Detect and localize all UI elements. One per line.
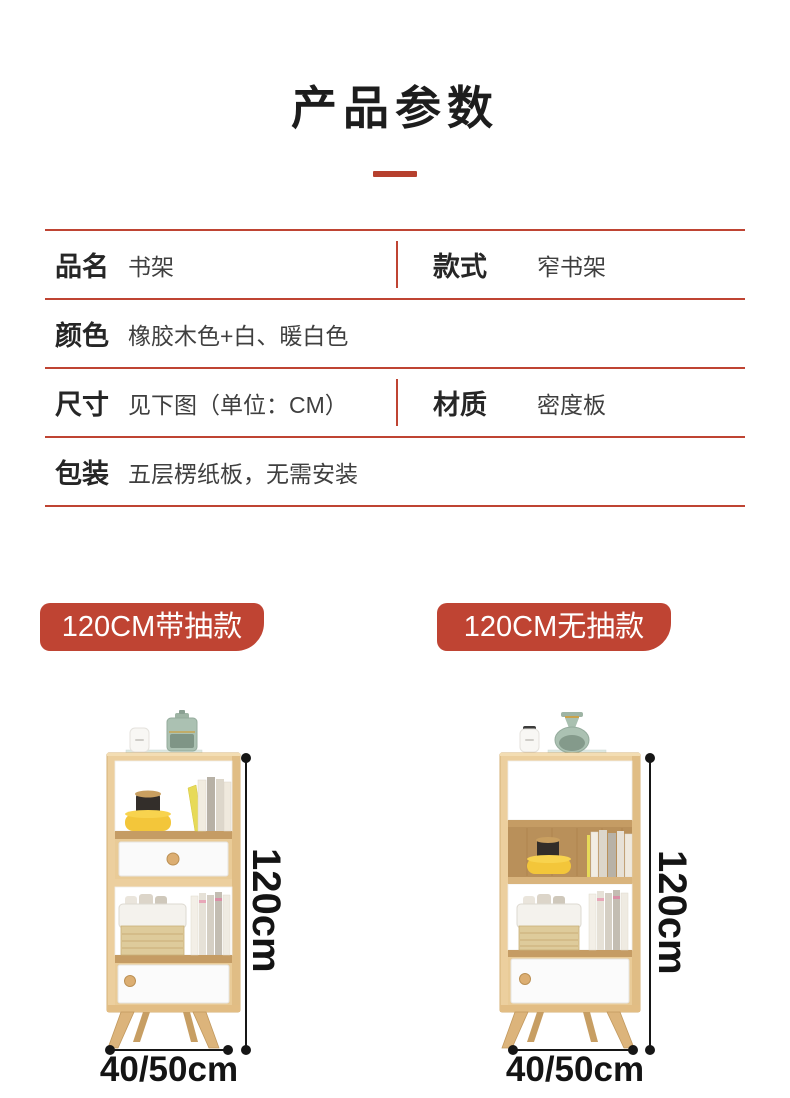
- spec-value: 橡胶木色+白、暖白色: [128, 317, 348, 351]
- bookshelf-no-drawer-illustration: [495, 700, 670, 1055]
- variant-badge-with-drawer: 120CM带抽款: [40, 603, 264, 651]
- cabinet-door: [508, 957, 632, 1005]
- spec-cell-name: 品名 书架: [45, 245, 396, 284]
- width-dimension-label: 40/50cm: [79, 1050, 259, 1090]
- door-knob: [520, 974, 531, 985]
- spec-row-name-style: 品名 书架 款式 窄书架: [45, 231, 745, 300]
- spec-value: 书架: [128, 248, 174, 282]
- spec-row-packaging: 包装 五层楞纸板，无需安装: [45, 438, 745, 507]
- spec-value: 见下图（单位：CM）: [128, 386, 348, 420]
- cabinet-legs: [108, 1012, 219, 1048]
- spec-label: 包装: [55, 452, 128, 491]
- spec-value: 五层楞纸板，无需安装: [128, 455, 358, 489]
- product-parameters-section: 产品参数 品名 书架 款式 窄书架 颜色 橡胶木色+白、暖白色 尺寸 见下图（单…: [0, 0, 790, 1098]
- spec-cell-color: 颜色 橡胶木色+白、暖白色: [45, 314, 745, 353]
- spec-cell-material: 材质 密度板: [396, 383, 745, 422]
- cabinet-legs: [502, 1012, 634, 1048]
- cabinet-door: [115, 963, 232, 1005]
- door-knob: [125, 976, 136, 987]
- page-title: 产品参数: [0, 72, 790, 138]
- spec-label: 品名: [55, 245, 128, 284]
- spec-label: 颜色: [55, 314, 128, 353]
- spec-value: 密度板: [537, 386, 606, 420]
- spec-label: 款式: [433, 245, 505, 284]
- height-dimension-label: 120cm: [245, 848, 287, 958]
- decor-top-items: [126, 710, 202, 753]
- variant-badge-no-drawer: 120CM无抽款: [437, 603, 671, 651]
- spec-row-color: 颜色 橡胶木色+白、暖白色: [45, 300, 745, 369]
- spec-cell-packaging: 包装 五层楞纸板，无需安装: [45, 452, 745, 491]
- column-divider: [396, 379, 398, 426]
- spec-value: 窄书架: [537, 248, 606, 282]
- title-underline-bar: [373, 171, 417, 177]
- width-dimension-label: 40/50cm: [485, 1050, 665, 1090]
- spec-label: 材质: [433, 383, 505, 422]
- height-dimension-label: 120cm: [651, 850, 693, 960]
- spec-row-size-material: 尺寸 见下图（单位：CM） 材质 密度板: [45, 369, 745, 438]
- bookshelf-with-drawer-illustration: [85, 700, 255, 1055]
- drawer-front: [115, 839, 232, 879]
- decor-top-items: [520, 712, 606, 753]
- spec-cell-style: 款式 窄书架: [396, 245, 745, 284]
- column-divider: [396, 241, 398, 288]
- drawer-knob: [167, 853, 179, 865]
- wood-back-shelf: [508, 827, 632, 884]
- spec-cell-size: 尺寸 见下图（单位：CM）: [45, 383, 396, 422]
- spec-label: 尺寸: [55, 383, 128, 422]
- spec-table: 品名 书架 款式 窄书架 颜色 橡胶木色+白、暖白色 尺寸 见下图（单位：CM）…: [45, 229, 745, 507]
